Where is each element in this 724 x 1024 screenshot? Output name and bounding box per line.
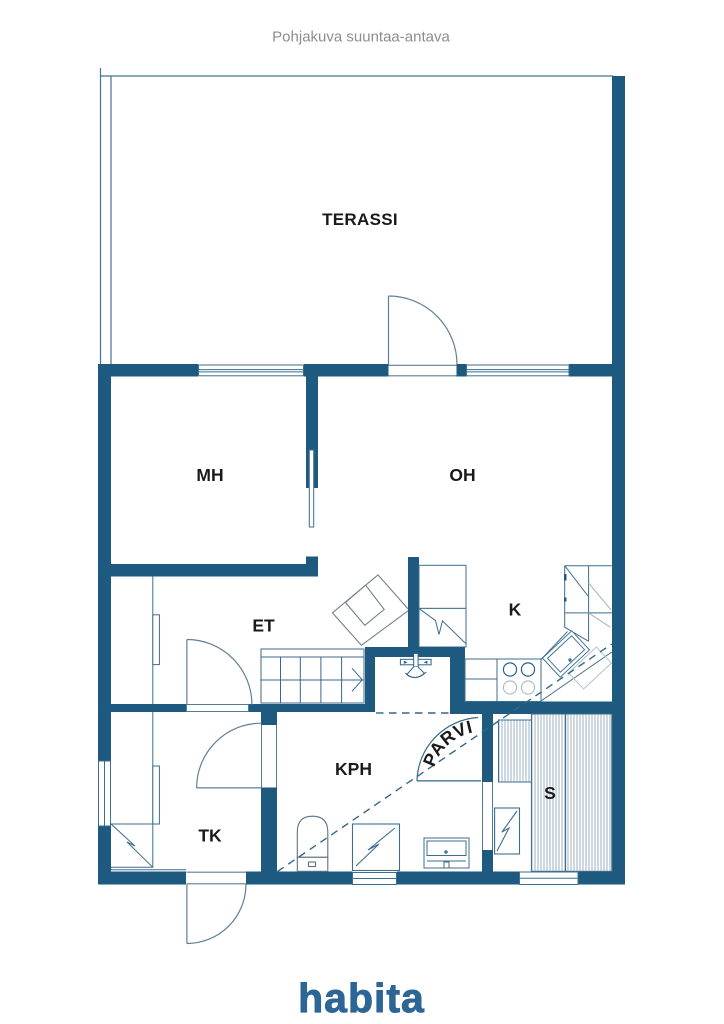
svg-text:OH: OH <box>449 465 475 485</box>
svg-text:K: K <box>509 600 522 620</box>
svg-text:KPH: KPH <box>335 759 372 779</box>
svg-text:TK: TK <box>198 826 222 846</box>
svg-text:ET: ET <box>252 616 275 636</box>
svg-text:habita: habita <box>298 975 425 1021</box>
svg-text:S: S <box>544 783 556 803</box>
svg-text:Pohjakuva suuntaa-antava: Pohjakuva suuntaa-antava <box>272 29 450 46</box>
svg-text:TERASSI: TERASSI <box>322 210 398 229</box>
svg-text:MH: MH <box>196 465 223 485</box>
